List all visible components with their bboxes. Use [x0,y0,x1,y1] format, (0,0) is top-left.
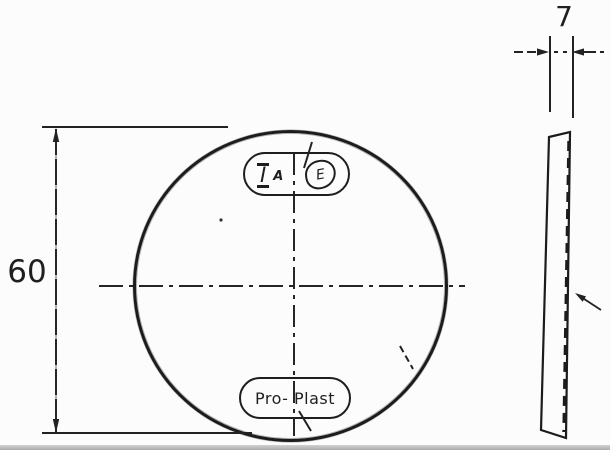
tick-mark-lower-right [400,346,413,369]
scan-edge-strip [0,445,610,450]
side-view-leader-arrowhead [575,293,586,302]
tick-mark-top [304,142,312,168]
diameter-arrowhead-down [53,419,59,433]
thickness-arrowhead-left [537,48,549,55]
line-work-overlay [0,0,610,450]
diameter-arrowhead-up [53,128,59,142]
tick-mark-bottom [299,411,311,431]
thickness-arrowhead-right [572,48,584,55]
scan-speck [219,218,222,221]
drawing-sheet: I A E Pro- Plast 60 7 [0,0,610,450]
